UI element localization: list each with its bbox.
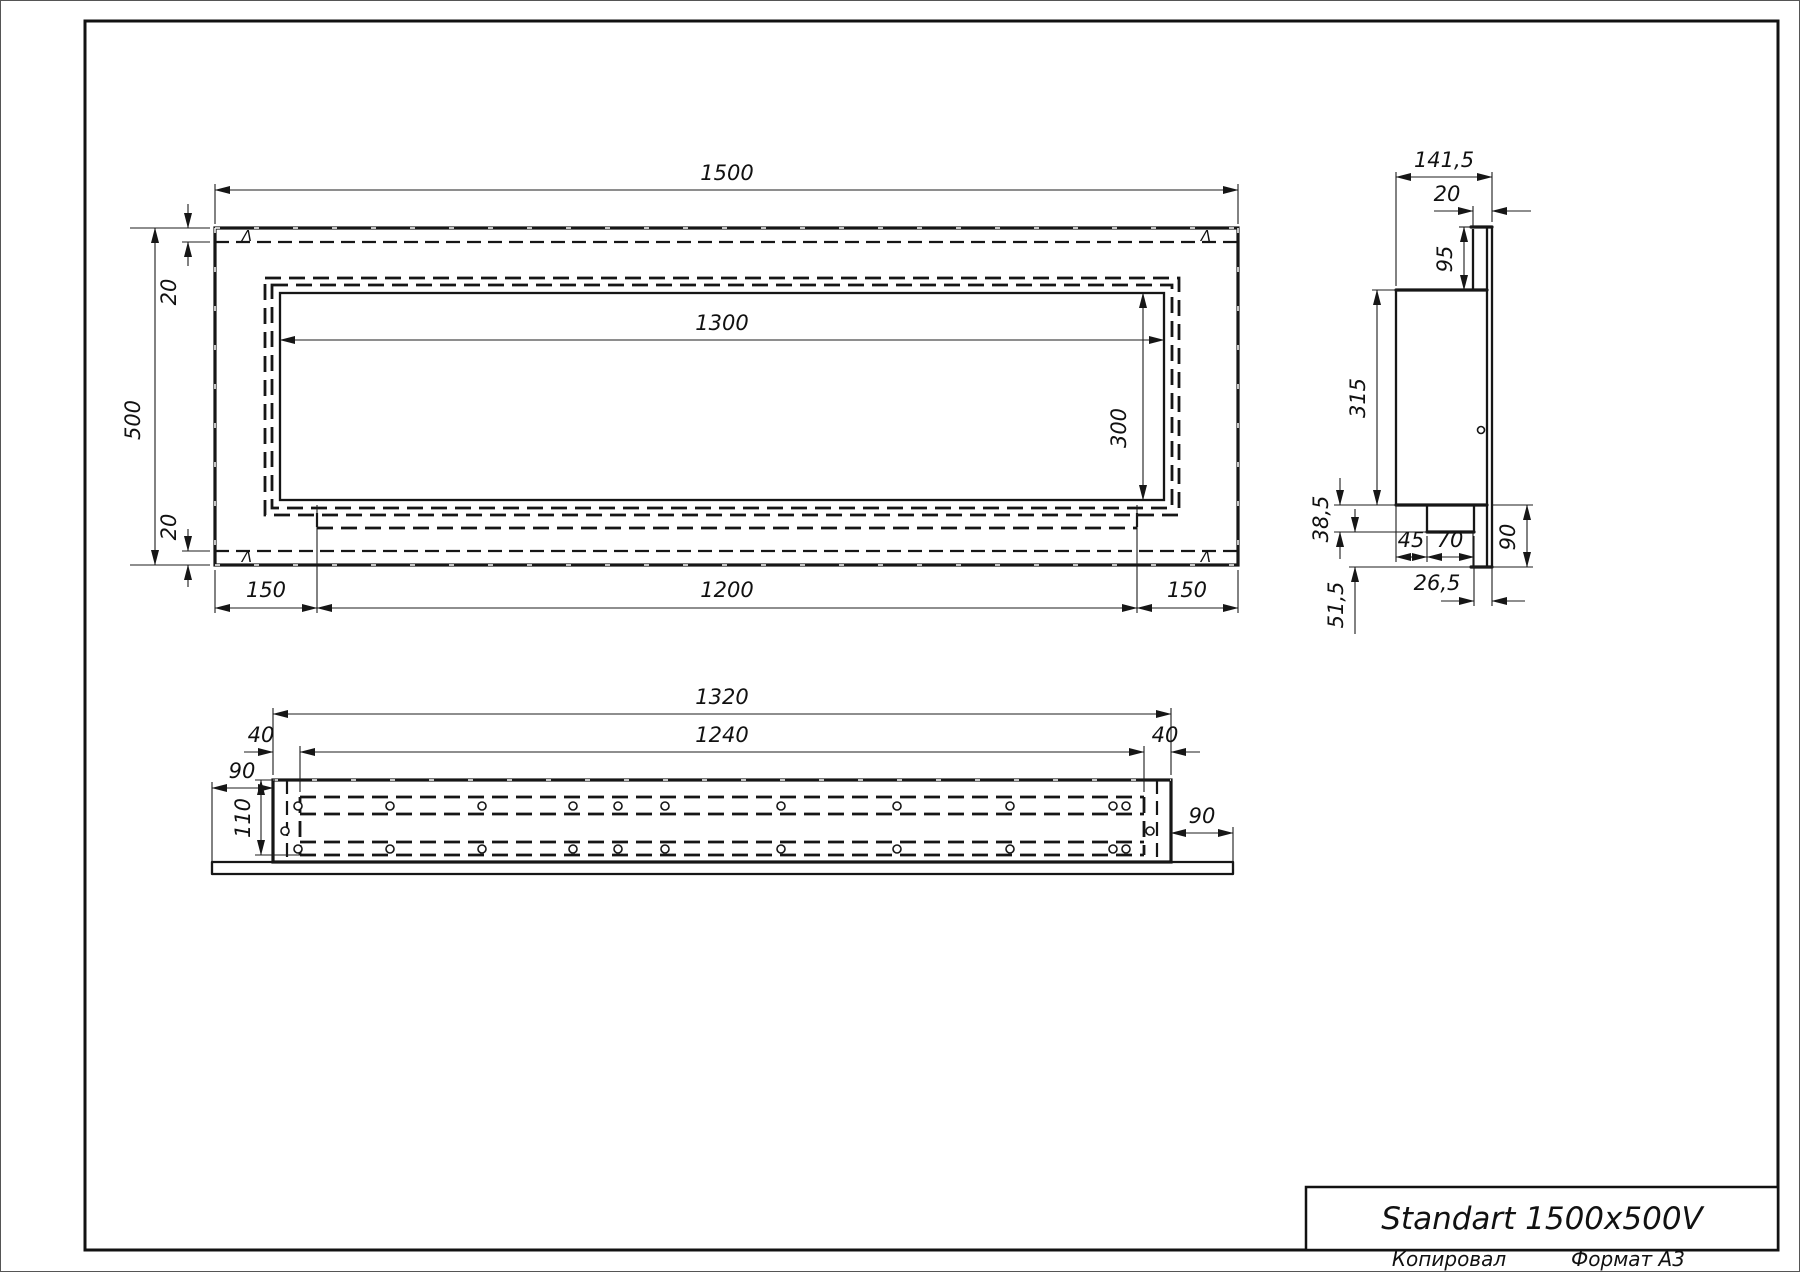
dim-right-margin: 150 — [1167, 578, 1207, 602]
mounting-hole — [661, 845, 669, 853]
mounting-hole — [1122, 802, 1130, 810]
mounting-hole — [1109, 845, 1117, 853]
mounting-hole — [281, 827, 289, 835]
dim-bottom-offset: 90 — [1496, 524, 1520, 551]
dim-lower-extension: 51,5 — [1324, 582, 1348, 629]
dim-fold-left: 40 — [248, 723, 275, 747]
mounting-hole — [661, 802, 669, 810]
mounting-hole — [1109, 802, 1117, 810]
drawing-title: Standart 1500x500V — [1381, 1201, 1705, 1237]
mounting-hole — [1122, 845, 1130, 853]
page-edge — [1, 1, 1800, 1272]
dim-fold-right: 40 — [1152, 723, 1179, 747]
dim-overall-height: 500 — [121, 400, 145, 440]
corner-mark: Λ — [1200, 227, 1211, 245]
dim-opening-height: 300 — [1107, 408, 1131, 448]
dim-left-margin: 150 — [246, 578, 286, 602]
dim-step-down: 38,5 — [1309, 496, 1333, 543]
dim-inner-length: 1240 — [695, 723, 748, 747]
mounting-hole — [294, 845, 302, 853]
mounting-hole — [893, 845, 901, 853]
dim-box-height: 315 — [1346, 378, 1370, 418]
dim-bracket-offset: 45 — [1398, 528, 1425, 552]
dim-opening-width: 1300 — [695, 311, 748, 335]
dim-lip-right: 90 — [1189, 804, 1216, 828]
mounting-hole — [777, 802, 785, 810]
mounting-hole — [1006, 845, 1014, 853]
mounting-hole — [893, 802, 901, 810]
corner-mark: Λ — [241, 548, 252, 566]
mounting-hole — [1006, 802, 1014, 810]
flange-hole — [1478, 427, 1485, 434]
mounting-hole — [569, 802, 577, 810]
dim-lip-left: 90 — [229, 759, 256, 783]
corner-mark: Λ — [241, 227, 252, 245]
dim-bracket-width-side: 70 — [1437, 528, 1464, 552]
mounting-hole — [478, 802, 486, 810]
mounting-hole — [777, 845, 785, 853]
mounting-hole — [386, 802, 394, 810]
corner-mark: Λ — [1200, 548, 1211, 566]
copied-label: Копировал — [1392, 1247, 1506, 1271]
dim-flange-fold: 20 — [1434, 182, 1461, 206]
mounting-hole — [614, 802, 622, 810]
mounting-hole — [614, 845, 622, 853]
mounting-hole — [569, 845, 577, 853]
mounting-hole — [294, 802, 302, 810]
dim-depth-bottom: 110 — [231, 798, 255, 838]
dim-depth: 141,5 — [1414, 148, 1474, 172]
format-label: Формат A3 — [1571, 1247, 1685, 1271]
dim-bracket-to-flange: 26,5 — [1414, 571, 1461, 595]
mounting-hole — [1146, 827, 1154, 835]
dim-top-fold: 20 — [157, 279, 181, 306]
dim-box-length: 1320 — [695, 685, 748, 709]
dim-top-offset: 95 — [1433, 246, 1457, 273]
dim-bottom-fold: 20 — [157, 514, 181, 541]
dim-bracket-width: 1200 — [700, 578, 753, 602]
mounting-hole — [386, 845, 394, 853]
engineering-drawing: Λ Λ Λ Λ 1500 500 20 20 1300 300 — [0, 0, 1800, 1273]
drawing-sheet: Λ Λ Λ Λ 1500 500 20 20 1300 300 — [0, 0, 1800, 1273]
dim-overall-width: 1500 — [700, 161, 753, 185]
mounting-hole — [478, 845, 486, 853]
